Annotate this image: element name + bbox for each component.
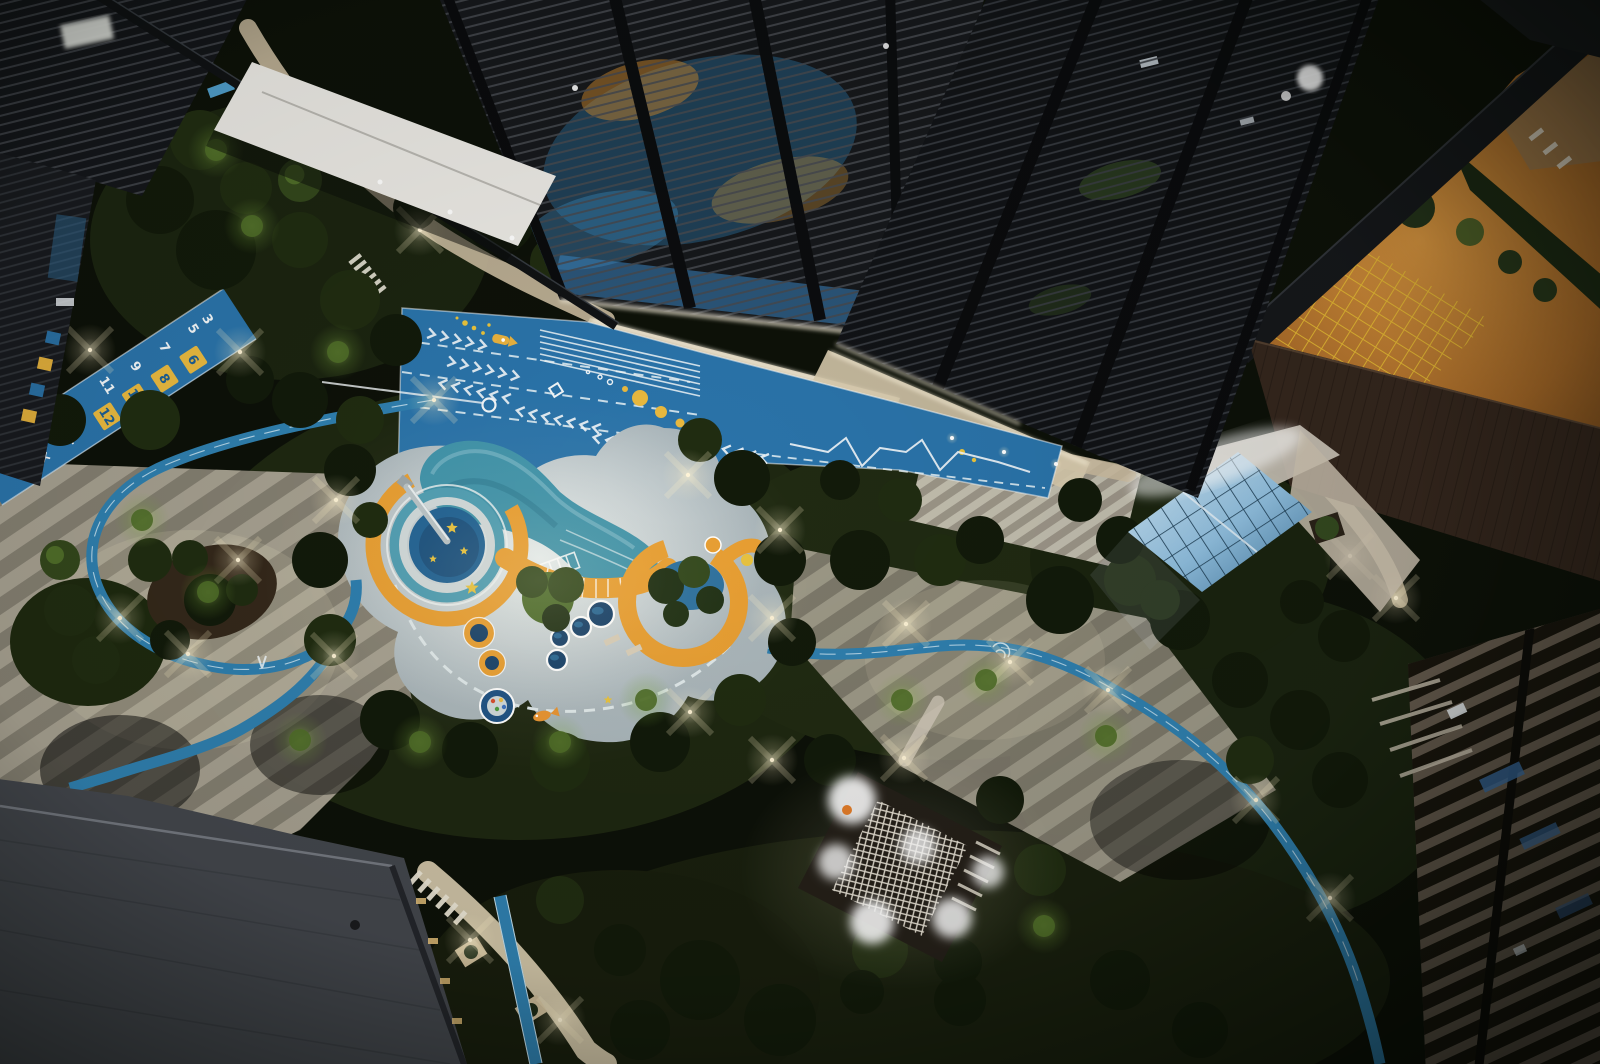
vignette-overlay xyxy=(0,0,1600,1064)
aerial-courtyard-night-photo: 356789101112−÷+×JUMP xyxy=(0,0,1600,1064)
